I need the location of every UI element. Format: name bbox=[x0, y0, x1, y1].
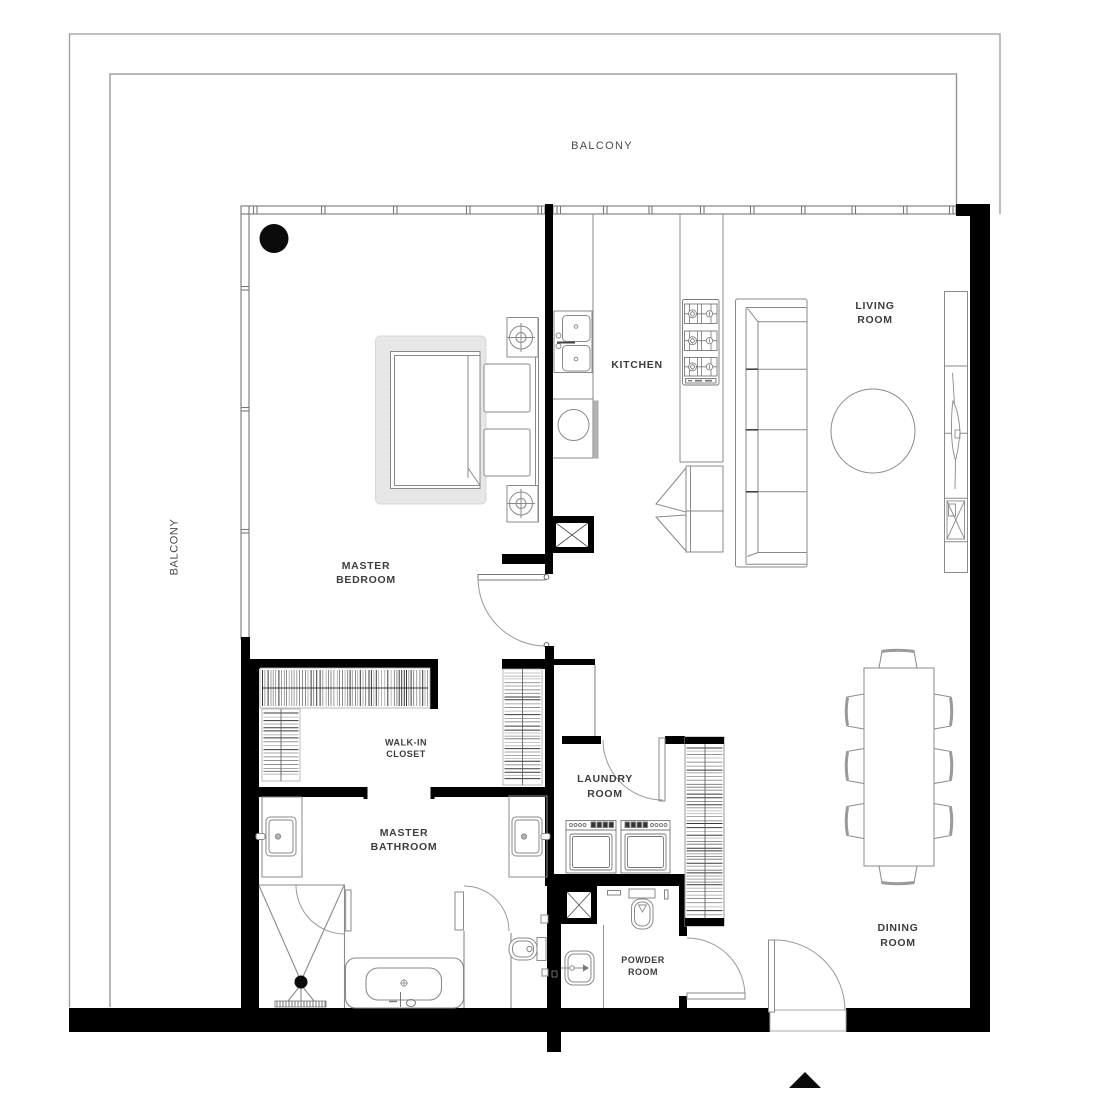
svg-text:DINING: DINING bbox=[878, 922, 919, 934]
svg-text:MASTER: MASTER bbox=[342, 560, 391, 572]
svg-text:ROOM: ROOM bbox=[628, 967, 658, 977]
svg-text:BEDROOM: BEDROOM bbox=[336, 574, 396, 586]
svg-text:ROOM: ROOM bbox=[880, 937, 915, 949]
svg-text:MASTER: MASTER bbox=[380, 827, 429, 839]
svg-text:ROOM: ROOM bbox=[587, 788, 622, 800]
svg-text:POWDER: POWDER bbox=[621, 955, 665, 965]
svg-text:CLOSET: CLOSET bbox=[386, 749, 426, 759]
svg-text:WALK-IN: WALK-IN bbox=[385, 738, 427, 748]
svg-text:LIVING: LIVING bbox=[855, 300, 894, 312]
svg-text:BATHROOM: BATHROOM bbox=[371, 841, 438, 853]
svg-text:BALCONY: BALCONY bbox=[169, 519, 181, 576]
svg-text:KITCHEN: KITCHEN bbox=[611, 359, 663, 371]
svg-text:ROOM: ROOM bbox=[857, 314, 892, 326]
svg-text:BALCONY: BALCONY bbox=[571, 140, 633, 152]
svg-text:LAUNDRY: LAUNDRY bbox=[577, 773, 633, 785]
